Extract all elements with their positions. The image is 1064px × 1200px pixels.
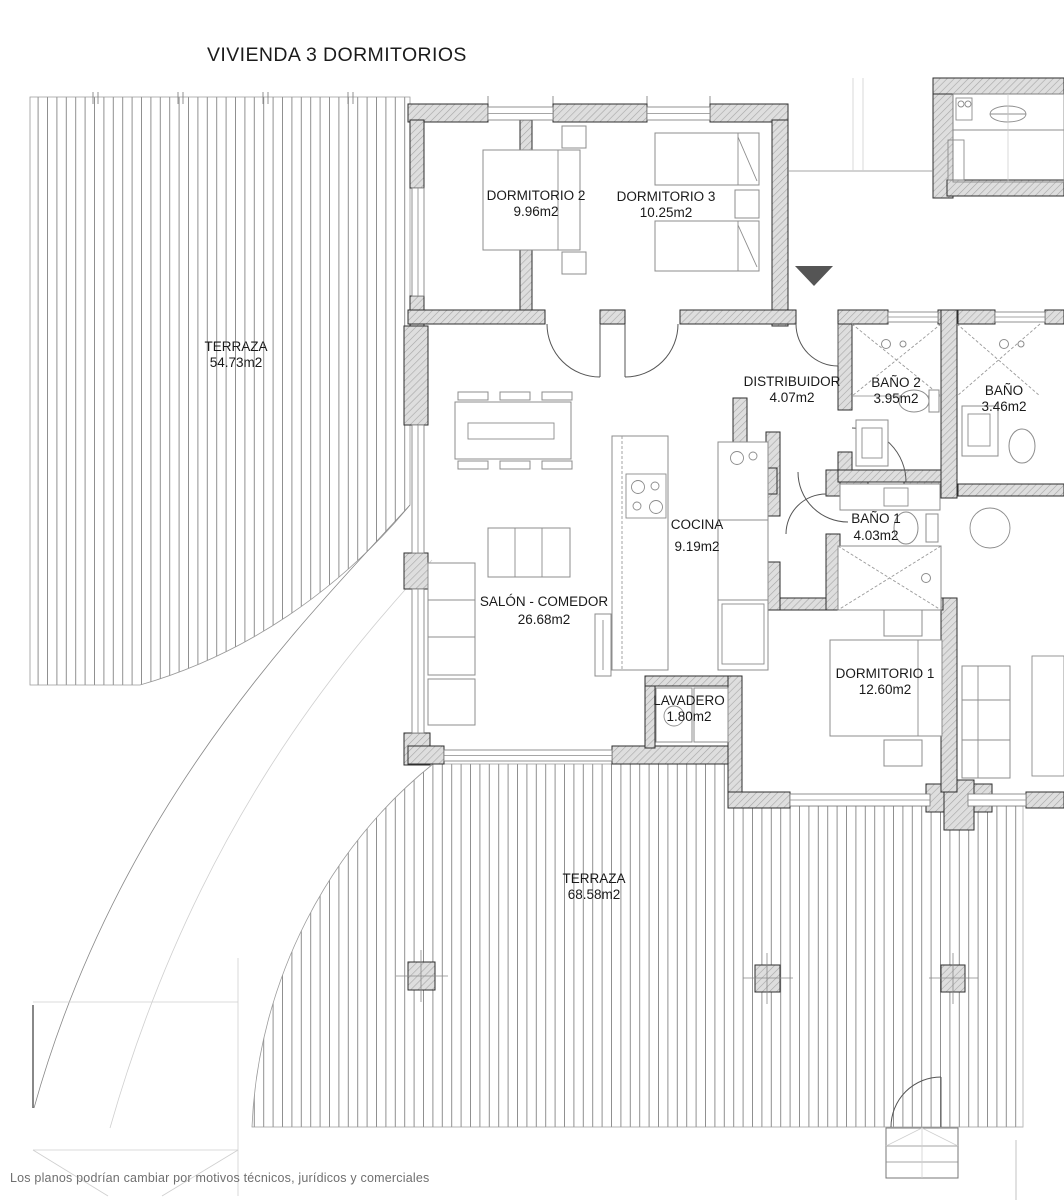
room-label-salon-comedor: SALÓN - COMEDOR 26.68m2	[480, 593, 608, 629]
room-label-bano-adjacent: BAÑO 3.46m2	[981, 383, 1026, 415]
room-area: 68.58m2	[562, 887, 625, 903]
floor-plan-page: { "title": "VIVIENDA 3 DORMITORIOS", "di…	[0, 0, 1064, 1200]
room-label-dormitorio-2: DORMITORIO 2 9.96m2	[487, 188, 586, 220]
room-name: LAVADERO	[653, 693, 725, 709]
room-area: 12.60m2	[836, 682, 935, 698]
room-name: SALÓN - COMEDOR	[480, 593, 608, 611]
room-label-terraza-left: TERRAZA 54.73m2	[204, 339, 267, 371]
room-label-bano-2: BAÑO 2 3.95m2	[871, 375, 921, 407]
room-label-dormitorio-1: DORMITORIO 1 12.60m2	[836, 666, 935, 698]
room-name: COCINA	[671, 514, 724, 536]
room-name: DORMITORIO 2	[487, 188, 586, 204]
room-label-bano-1: BAÑO 1 4.03m2	[851, 510, 901, 544]
room-name: DORMITORIO 3	[617, 189, 716, 205]
page-title: VIVIENDA 3 DORMITORIOS	[207, 44, 467, 67]
room-area: 3.95m2	[871, 391, 921, 407]
room-name: TERRAZA	[204, 339, 267, 355]
room-name: BAÑO	[981, 383, 1026, 399]
room-label-cocina: COCINA 9.19m2	[671, 514, 724, 558]
room-name: TERRAZA	[562, 871, 625, 887]
room-label-terraza-bottom: TERRAZA 68.58m2	[562, 871, 625, 903]
room-area: 1.80m2	[653, 709, 725, 725]
room-area: 10.25m2	[617, 205, 716, 221]
terrace-left-deck	[30, 97, 410, 685]
room-label-lavadero: LAVADERO 1.80m2	[653, 693, 725, 725]
room-name: BAÑO 2	[871, 375, 921, 391]
room-label-dormitorio-3: DORMITORIO 3 10.25m2	[617, 189, 716, 221]
room-area: 9.96m2	[487, 204, 586, 220]
bathroom-fixtures	[735, 324, 1040, 610]
disclaimer-text: Los planos podrían cambiar por motivos t…	[10, 1171, 429, 1185]
room-area: 9.19m2	[671, 536, 724, 558]
room-name: DISTRIBUIDOR	[744, 374, 841, 390]
room-area: 26.68m2	[480, 611, 608, 629]
terrace-bottom-deck	[252, 764, 1023, 1127]
room-label-distribuidor: DISTRIBUIDOR 4.07m2	[744, 374, 841, 406]
entry-direction-marker	[795, 266, 833, 286]
room-area: 3.46m2	[981, 399, 1026, 415]
room-name: DORMITORIO 1	[836, 666, 935, 682]
room-area: 54.73m2	[204, 355, 267, 371]
room-area: 4.07m2	[744, 390, 841, 406]
room-name: BAÑO 1	[851, 510, 901, 527]
room-area: 4.03m2	[851, 527, 901, 544]
